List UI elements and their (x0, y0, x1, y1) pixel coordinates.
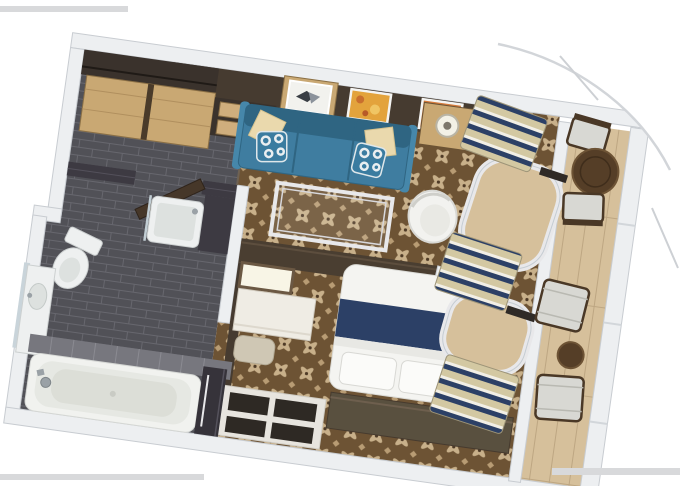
floorplan-rendering (0, 0, 680, 486)
pillow-patterned-base (351, 142, 387, 178)
photo-edge-strip (0, 474, 204, 480)
lounge-chair-cushion (535, 279, 590, 333)
balcony-lounge-chair (535, 375, 584, 422)
suite-plan (2, 31, 651, 486)
shower-tray-inner (153, 202, 197, 241)
pillow-patterned (351, 142, 387, 178)
vanity-stool (233, 334, 276, 365)
vanity-mirror (239, 263, 294, 294)
floorplan-page (0, 0, 680, 486)
shower (144, 195, 204, 248)
photo-edge-strip (552, 468, 680, 475)
balcony-chair-seat (563, 193, 604, 222)
photo-edge-strip (0, 6, 128, 12)
balcony-chair (563, 193, 604, 226)
balcony-lounge-chair (535, 279, 590, 333)
pillow-patterned (257, 132, 287, 162)
lounge-chair-cushion (535, 375, 584, 422)
